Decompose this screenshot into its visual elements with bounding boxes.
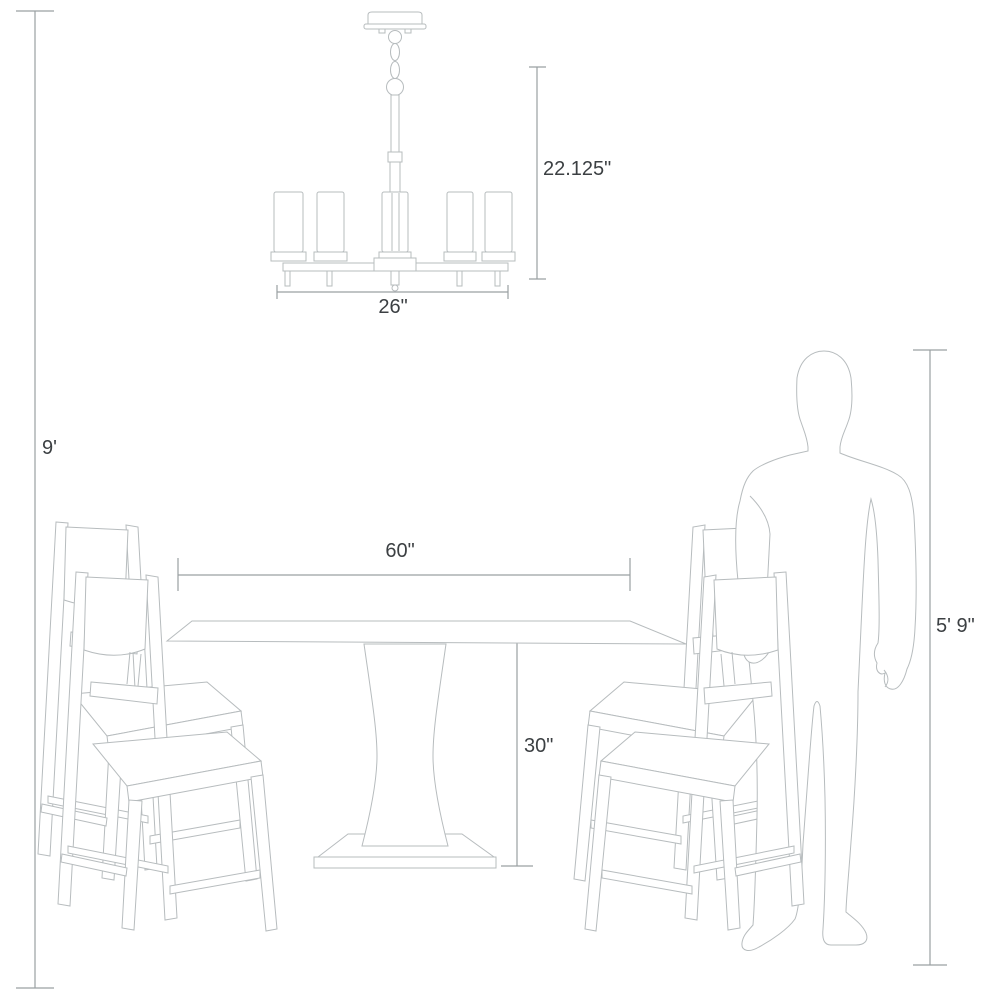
chandelier-height-label: 22.125" <box>543 158 611 180</box>
table-height-label: 30" <box>524 735 553 757</box>
table-width-label: 60" <box>385 540 414 562</box>
pedestal-column <box>362 644 448 846</box>
person-height-label: 5' 9" <box>936 615 975 637</box>
diagram-canvas <box>0 0 1000 1000</box>
ceiling-height-label: 9' <box>42 437 57 459</box>
chandelier-width-label: 26" <box>378 296 407 318</box>
table-top <box>167 621 686 644</box>
dimension-line-person-height <box>913 350 947 965</box>
dimension-diagram: 9' 22.125" 26" 60" 30" 5' 9" <box>0 0 1000 1000</box>
chandelier-drawing <box>271 12 515 291</box>
pedestal-base-plate <box>314 857 496 868</box>
dimension-line-table-width <box>178 558 630 591</box>
